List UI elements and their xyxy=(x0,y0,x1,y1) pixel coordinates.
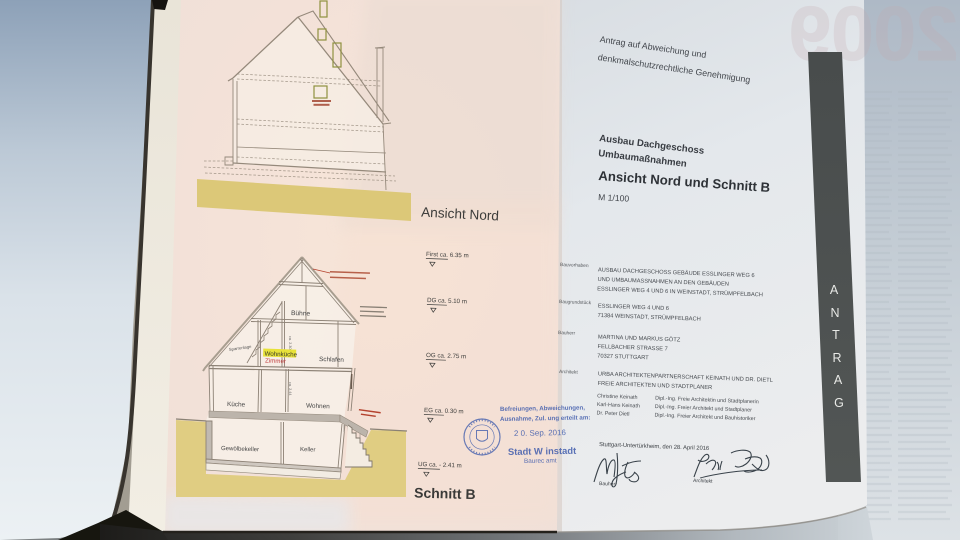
svg-text:Stadt W instadt: Stadt W instadt xyxy=(508,445,576,457)
svg-text:Schlafen: Schlafen xyxy=(319,356,345,364)
svg-text:OG ca. 2.75 m: OG ca. 2.75 m xyxy=(426,352,466,360)
svg-text:Bühne: Bühne xyxy=(291,310,311,318)
svg-text:T: T xyxy=(832,328,840,342)
svg-text:Architekt: Architekt xyxy=(693,478,713,485)
svg-text:Dr. Peter Dietl: Dr. Peter Dietl xyxy=(596,410,629,417)
svg-text:G: G xyxy=(834,396,844,410)
svg-text:2 0. Sep. 2016: 2 0. Sep. 2016 xyxy=(514,428,567,438)
svg-text:ca. 2.44: ca. 2.44 xyxy=(288,382,292,396)
svg-text:DG ca. 5.10 m: DG ca. 5.10 m xyxy=(427,297,467,305)
svg-text:Architekt: Architekt xyxy=(559,369,579,376)
svg-text:A: A xyxy=(830,283,839,297)
svg-text:Befreiungen, Abweichungen,: Befreiungen, Abweichungen, xyxy=(500,405,585,413)
svg-text:First ca. 6.35 m: First ca. 6.35 m xyxy=(426,251,469,259)
svg-text:Bauvorhaben: Bauvorhaben xyxy=(560,262,589,269)
svg-text:R: R xyxy=(832,351,841,365)
svg-text:M 1/100: M 1/100 xyxy=(598,192,630,204)
svg-text:ca. 2.30: ca. 2.30 xyxy=(288,336,292,350)
svg-text:EG ca. 0.30 m: EG ca. 0.30 m xyxy=(424,407,464,415)
svg-text:Bauherr: Bauherr xyxy=(599,481,617,488)
svg-text:Küche: Küche xyxy=(227,401,246,409)
svg-text:N: N xyxy=(830,306,839,320)
svg-text:Baurec amt: Baurec amt xyxy=(524,457,557,465)
svg-text:Baugrundstück: Baugrundstück xyxy=(559,299,592,306)
svg-text:Bauherr: Bauherr xyxy=(558,330,576,337)
svg-text:A: A xyxy=(834,373,843,387)
svg-text:Keller: Keller xyxy=(300,447,316,454)
svg-text:Zimmer: Zimmer xyxy=(265,358,286,366)
svg-text:Wohnen: Wohnen xyxy=(306,403,330,411)
svg-text:Schnitt B: Schnitt B xyxy=(414,485,476,503)
